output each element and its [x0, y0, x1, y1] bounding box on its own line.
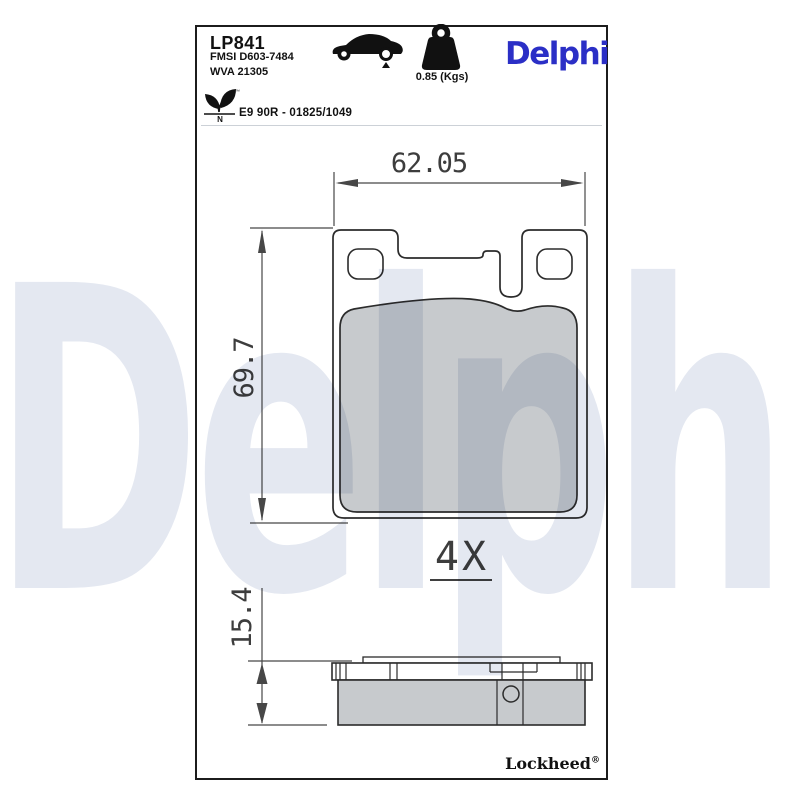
right-ear-hole [537, 249, 572, 279]
thickness-dimension-label: 15.4 [227, 578, 255, 658]
quantity-label: 4X [430, 534, 494, 580]
arrow-down [258, 498, 266, 522]
registered-mark: ® [591, 756, 600, 766]
backplate-top-strip [363, 657, 560, 663]
height-dimension-label: 69.7 [229, 328, 257, 408]
left-ear-hole [348, 249, 383, 279]
arrow-up [258, 230, 266, 254]
width-dimension-lines [334, 172, 585, 226]
datasheet-page: LP841 FMSI D603-7484 WVA 21305 0.85 (Kgs… [0, 0, 800, 800]
friction-pad-front [340, 298, 577, 512]
quantity-underline [430, 579, 492, 581]
lockheed-brand: Lockheed® [498, 754, 600, 773]
arrow-right [561, 179, 584, 187]
lockheed-text: Lockheed [505, 754, 591, 773]
technical-drawing [0, 0, 800, 800]
arrow-left [336, 179, 359, 187]
arrow-down-2 [257, 703, 268, 724]
width-dimension-label: 62.05 [386, 148, 472, 179]
arrow-up-2 [257, 663, 268, 684]
friction-pad-side [338, 680, 585, 725]
backplate-side [332, 663, 592, 680]
